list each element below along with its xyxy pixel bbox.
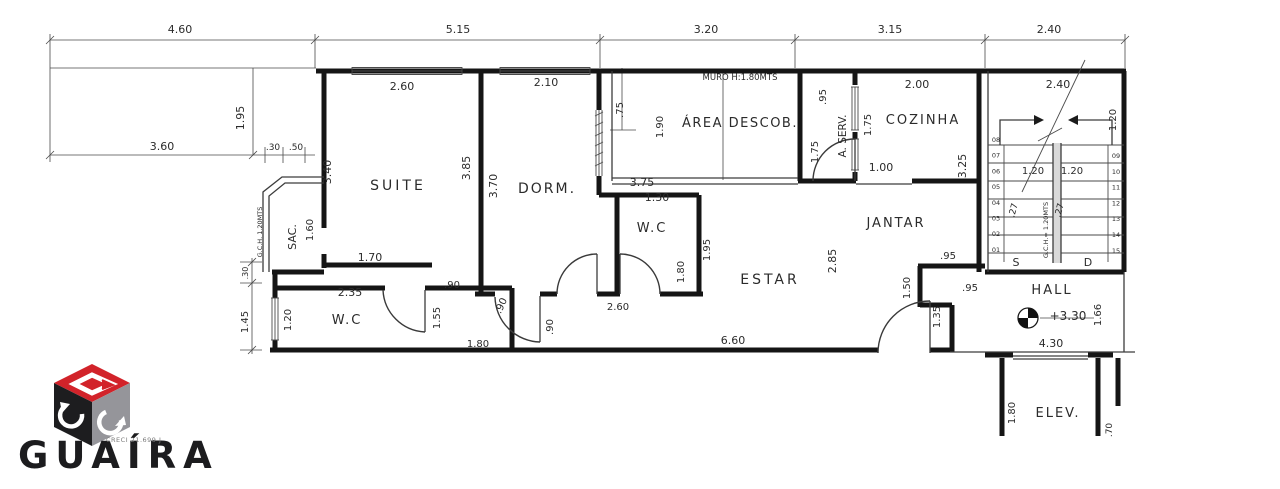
stair-step-number: 03	[992, 215, 1000, 223]
stair-step-number: 08	[992, 136, 1000, 144]
dim-label: 1.00	[869, 161, 894, 174]
dim-label: .70	[1105, 423, 1115, 438]
dim-label: .30	[266, 143, 281, 153]
dim-label: .95	[940, 251, 956, 262]
dim-label: 1.20	[1061, 166, 1083, 177]
dim-label: 3.60	[150, 140, 175, 153]
dim-label: 1.35	[932, 306, 943, 328]
level-marker-icon	[1018, 308, 1038, 328]
dim-label: G.C.H. 1.20MTS	[256, 207, 264, 258]
windows	[271, 67, 859, 340]
stair-step-number: 07	[992, 152, 1000, 160]
stair-step-number: 05	[992, 183, 1000, 191]
dim-label: S	[1013, 256, 1020, 269]
dimension-lines	[46, 34, 1129, 354]
room-label-sacada: SAC.	[286, 224, 299, 250]
dim-label: .50	[289, 143, 304, 153]
level-marker-value: +3.30	[1050, 309, 1087, 323]
room-label-wc-suite: W.C	[332, 313, 363, 328]
stair-step-number: 13	[1112, 215, 1120, 223]
stair-step-number: 04	[992, 199, 1000, 207]
room-label-elevador: ELEV.	[1035, 406, 1080, 421]
dim-label: 1.20	[283, 309, 294, 331]
room-label-wc-social: W.C	[637, 221, 668, 236]
window-wc-suite	[271, 298, 279, 340]
stair-step-number: 12	[1112, 199, 1120, 207]
room-label-jantar: JANTAR	[865, 216, 925, 231]
dim-label: 4.30	[1039, 337, 1064, 350]
guaira-logo: GUAÍRA CRECI 21.699 J	[14, 362, 374, 482]
dim-label: 1.95	[702, 239, 713, 261]
dim-label: 3.85	[460, 156, 473, 181]
room-label-area-servico: A. SERV.	[837, 115, 849, 158]
floor-plan-page: 4.605.153.203.152.401.953.60.30.502.60SU…	[0, 0, 1280, 489]
stair-step-number: 09	[1112, 152, 1120, 160]
stair-step-number: 11	[1112, 184, 1120, 192]
stair-direction-arrows	[1000, 115, 1112, 145]
dim-label: 1.50	[902, 277, 913, 299]
dim-label: 2.00	[905, 78, 930, 91]
room-label-suite: SUITE	[370, 178, 426, 194]
dim-top-3: 3.20	[694, 23, 719, 36]
dim-label: 1.70	[358, 251, 383, 264]
stair-step-number: 14	[1112, 231, 1120, 239]
dim-label: .30	[241, 267, 250, 280]
dim-label: 2.10	[534, 76, 559, 89]
dim-label: .90	[545, 319, 556, 335]
dim-label: .27	[1007, 202, 1020, 218]
stair-step-number: 06	[992, 167, 1000, 175]
dim-label: 2.60	[390, 80, 415, 93]
window-dorm	[500, 67, 590, 75]
dim-label: 2.40	[1046, 78, 1071, 91]
dim-ticks	[46, 36, 1129, 354]
room-label-hall: HALL	[1031, 283, 1072, 298]
dim-label: 3.75	[630, 176, 655, 189]
dim-label: 1.20	[1108, 109, 1119, 131]
window-suite	[352, 67, 462, 75]
room-label-cozinha: COZINHA	[886, 113, 960, 128]
dim-top-1: 4.60	[168, 23, 193, 36]
dim-top-5: 2.40	[1037, 23, 1062, 36]
dim-label: 1.20	[1022, 166, 1044, 177]
dim-top-2: 5.15	[446, 23, 471, 36]
dim-label: .90	[444, 280, 460, 291]
dim-label: .95	[962, 283, 978, 294]
dim-label: .95	[818, 89, 829, 105]
dim-label: 1.75	[863, 114, 874, 136]
room-label-area-descoberta: ÁREA DESCOB.	[682, 115, 798, 131]
dim-label: .75	[615, 102, 626, 118]
dim-label: 2.85	[826, 249, 839, 274]
dim-label: 2.35	[338, 286, 363, 299]
window-dorm-side	[595, 110, 603, 176]
dim-label: 1.80	[1007, 402, 1018, 424]
dim-label: 1.95	[234, 106, 247, 131]
dim-label: 6.60	[721, 334, 746, 347]
stair-step-number: 02	[992, 230, 1000, 238]
dim-label: 2.60	[607, 302, 629, 313]
stair-step-number: 10	[1112, 168, 1120, 176]
door-hall	[878, 301, 930, 353]
dim-label: 1.60	[305, 219, 316, 241]
dim-label: G.C.H.= 1.20MTS	[1042, 202, 1050, 258]
dim-label: 3.25	[956, 154, 969, 179]
dim-label: 1.45	[240, 311, 251, 333]
room-label-estar: ESTAR	[740, 272, 800, 288]
logo-creci-number: CRECI 21.699 J	[106, 436, 161, 444]
door-wc-suite	[383, 290, 425, 332]
dim-label: MURO H:1.80MTS	[703, 73, 778, 83]
dim-label: 1.90	[655, 116, 666, 138]
room-label-dorm: DORM.	[518, 181, 576, 197]
dim-label: 1.30	[645, 191, 670, 204]
dim-label: D	[1084, 256, 1092, 269]
dim-label: 1.55	[432, 307, 443, 329]
dim-label: 3.70	[487, 174, 500, 199]
door-wc-social	[620, 254, 660, 294]
dim-label: 3.40	[321, 160, 334, 185]
dim-top-4: 3.15	[878, 23, 903, 36]
dim-label: .90	[493, 296, 510, 315]
dim-label: 1.66	[1093, 304, 1104, 326]
dim-label: 1.80	[676, 261, 687, 283]
door-dorm	[557, 254, 597, 294]
stair-step-number: 15	[1112, 247, 1120, 255]
dim-label: 1.80	[467, 339, 489, 350]
dim-label: 1.75	[810, 141, 821, 163]
stair-step-number: 01	[992, 246, 1000, 254]
